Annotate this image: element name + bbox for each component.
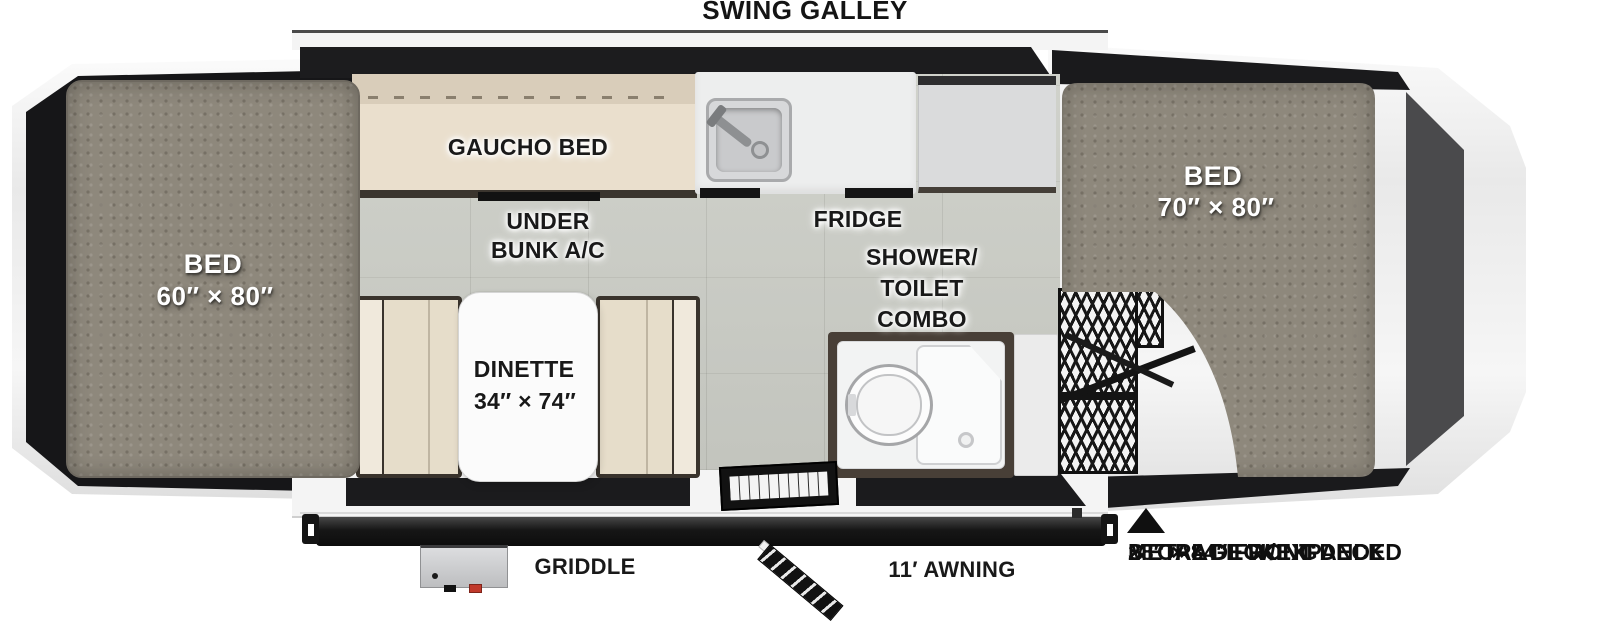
toilet-lid bbox=[856, 374, 922, 436]
right-bed-size-label: 70″ × 80″ bbox=[1158, 192, 1275, 222]
under-bunk-ac-vent bbox=[478, 192, 600, 201]
sink-sprayer-icon bbox=[751, 141, 769, 159]
fridge-label: FRIDGE bbox=[814, 206, 903, 232]
bench-left-seam bbox=[428, 300, 430, 474]
awning-rail bbox=[316, 517, 1106, 546]
griddle-label: GRIDDLE bbox=[534, 554, 635, 580]
dinette-table bbox=[458, 292, 598, 482]
bench-right-seam bbox=[646, 300, 648, 474]
folding-entry-step bbox=[757, 544, 843, 621]
body-bottom-wall-right-segment bbox=[856, 474, 1086, 506]
under-bunk-ac-label-line1: UNDER bbox=[506, 208, 589, 234]
camper-floorplan-diagram: SWING GALLEY BED 60″ × 80″ BED 70″ × 80″… bbox=[0, 0, 1600, 624]
front-deck-note-line3: METAL DECKING bbox=[1128, 538, 1318, 568]
shower-toilet-label-line2: TOILET bbox=[880, 275, 963, 301]
body-bottom-wall-left-segment bbox=[346, 478, 690, 506]
fridge-cabinet bbox=[918, 76, 1056, 193]
griddle-unit bbox=[420, 545, 508, 588]
entry-step-plate bbox=[719, 461, 839, 511]
griddle-connector-red bbox=[469, 584, 482, 593]
shower-drain-icon bbox=[958, 432, 974, 448]
gaucho-bed-label: GAUCHO BED bbox=[448, 134, 608, 160]
rail-shadow-line bbox=[300, 512, 1108, 514]
gaucho-bed-back-cushion bbox=[352, 74, 697, 106]
toilet-hinge bbox=[848, 394, 856, 416]
right-wing-tip-panel bbox=[1406, 92, 1464, 466]
griddle-knob bbox=[432, 573, 438, 579]
gaucho-bed-stitch-line bbox=[368, 96, 680, 99]
dinette-bench-right-seat bbox=[600, 300, 672, 474]
dinette-bench-right-back-cushion bbox=[674, 300, 696, 474]
griddle-connector-black bbox=[444, 585, 456, 592]
awning-label: 11′ AWNING bbox=[888, 557, 1015, 583]
left-bed-mattress bbox=[66, 80, 360, 478]
counter-base-trim-right bbox=[845, 188, 913, 198]
counter-base-trim-left bbox=[700, 188, 760, 198]
wardrobe-cabinet bbox=[1014, 334, 1058, 476]
dinette-bench-left-back-cushion bbox=[360, 300, 382, 474]
dinette-bench-left-seat bbox=[384, 300, 458, 474]
front-deck-marker-triangle-icon bbox=[1127, 508, 1165, 533]
left-bed-size-label: 60″ × 80″ bbox=[157, 281, 274, 311]
swing-galley-label: SWING GALLEY bbox=[702, 0, 908, 24]
expanded-metal-decking-ext bbox=[1138, 288, 1164, 348]
under-bunk-ac-label-line2: BUNK A/C bbox=[491, 237, 605, 263]
rail-end-notch-left bbox=[308, 524, 314, 536]
left-bed-label: BED bbox=[184, 249, 243, 279]
dinette-size-label: 34″ × 74″ bbox=[474, 388, 576, 414]
shower-toilet-label-line3: COMBO bbox=[877, 306, 967, 332]
shower-toilet-label-line1: SHOWER/ bbox=[866, 244, 978, 270]
right-bed-label: BED bbox=[1184, 161, 1243, 191]
fridge-cabinet-top-edge bbox=[918, 76, 1056, 85]
rail-bracket bbox=[1072, 508, 1082, 518]
entry-step-perforations bbox=[729, 471, 828, 500]
rail-end-notch-right bbox=[1107, 524, 1113, 536]
dinette-label: DINETTE bbox=[474, 356, 575, 382]
